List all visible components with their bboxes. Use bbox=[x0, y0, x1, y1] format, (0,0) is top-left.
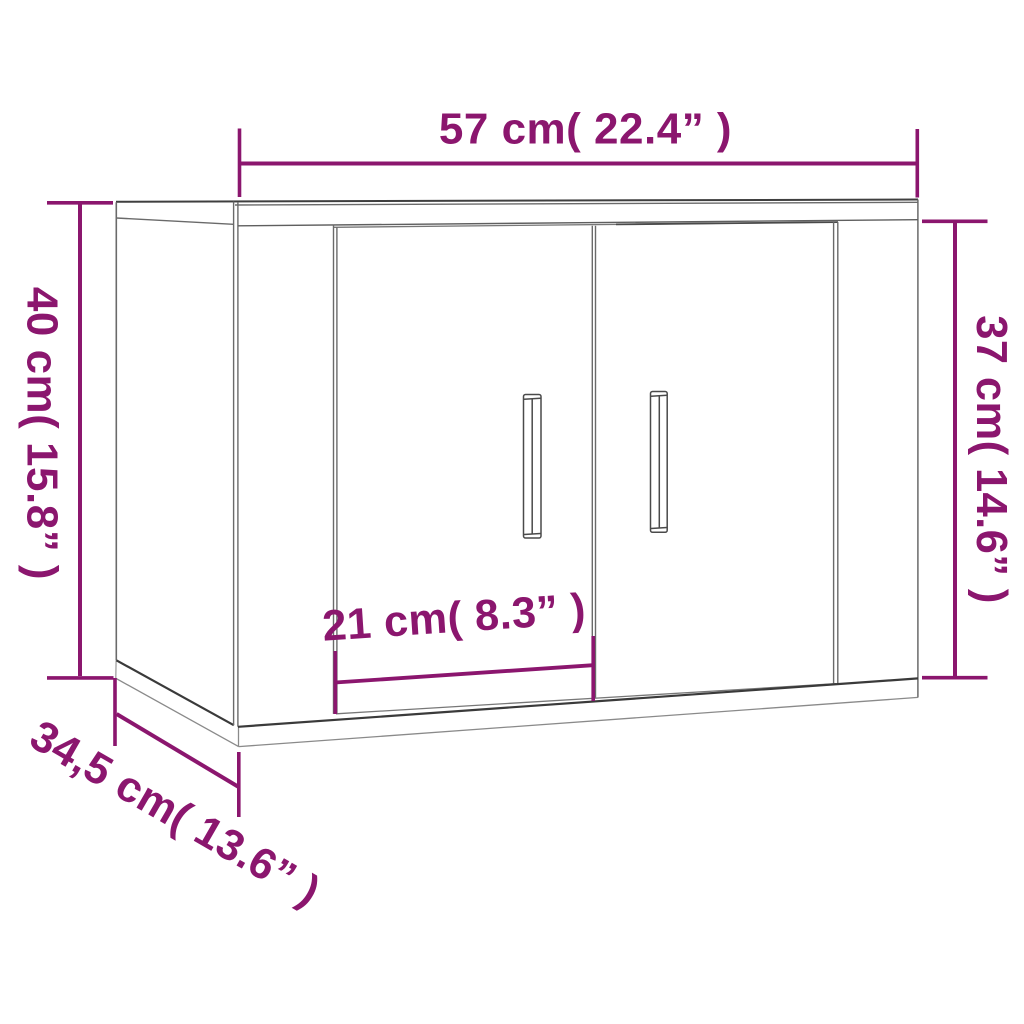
svg-text:57 cm( 22.4” ): 57 cm( 22.4” ) bbox=[439, 105, 732, 154]
svg-text:37 cm( 14.6” ): 37 cm( 14.6” ) bbox=[967, 315, 1015, 604]
svg-text:40 cm( 15.8” ): 40 cm( 15.8” ) bbox=[18, 287, 67, 580]
